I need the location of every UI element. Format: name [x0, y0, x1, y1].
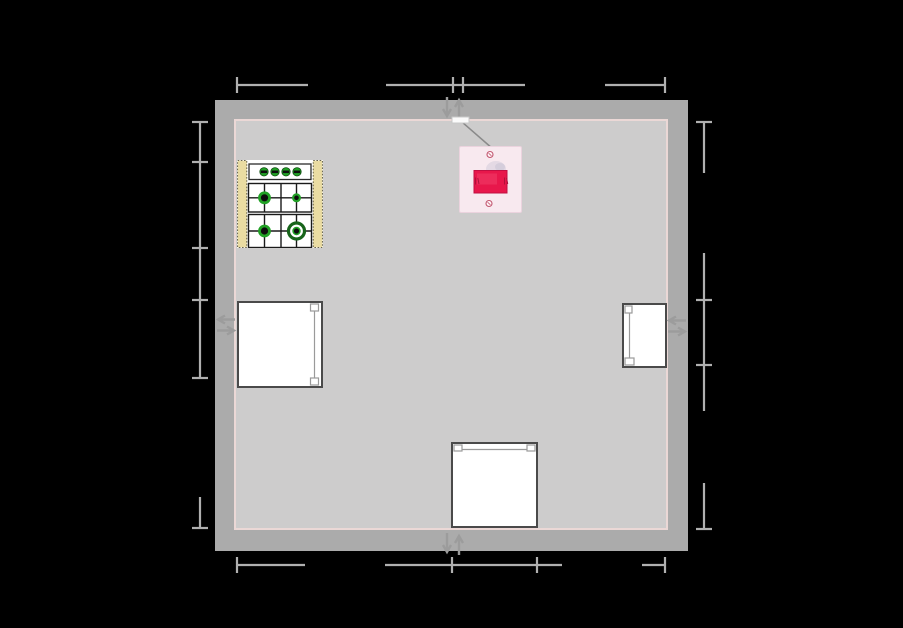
- appliance-left[interactable]: [237, 301, 323, 388]
- appliance-door-marks: [239, 303, 321, 386]
- burner-icon: [260, 193, 270, 203]
- knob-icon: [271, 168, 279, 176]
- dimension-top: [237, 77, 665, 93]
- burner-icon: [293, 194, 300, 201]
- switch-screw-bottom: [486, 201, 492, 207]
- appliance-door-marks: [624, 305, 665, 366]
- appliance-bottom[interactable]: [451, 442, 538, 528]
- dimension-right: [696, 122, 712, 529]
- cooktop-left-rail: [238, 161, 247, 248]
- knob-icon: [260, 168, 268, 176]
- floor-plan-canvas: [0, 0, 903, 628]
- dimension-bottom: [237, 557, 665, 573]
- rocker-highlight: [477, 174, 497, 185]
- switch-screw-top: [487, 152, 493, 158]
- appliance-right[interactable]: [622, 303, 667, 368]
- plate-shading: [495, 163, 505, 171]
- light-switch[interactable]: [459, 146, 522, 213]
- burner-icon: [260, 226, 270, 236]
- dimension-left: [192, 122, 208, 528]
- appliance-door-marks: [453, 444, 536, 526]
- knob-icon: [282, 168, 290, 176]
- cooktop-right-rail: [313, 161, 322, 248]
- burner-large-center: [293, 228, 300, 235]
- knob-icon: [293, 168, 301, 176]
- cooktop-control-panel: [249, 164, 311, 180]
- gas-cooktop[interactable]: [237, 160, 323, 248]
